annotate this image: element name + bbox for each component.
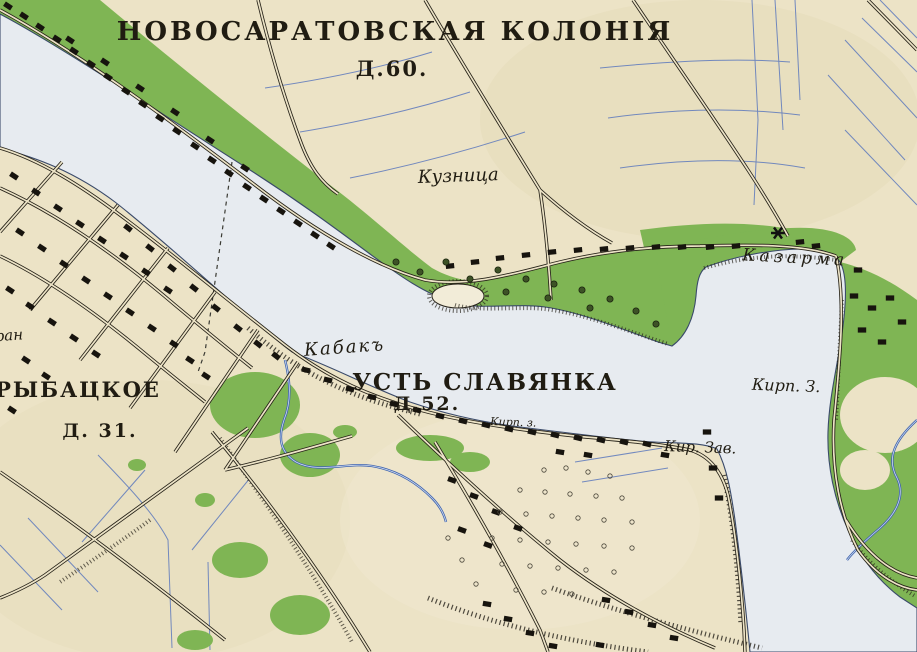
- historical-map: НОВОСАРАТОВСКАЯ КОЛОНІЯ Д.60. Кузница Ка…: [0, 0, 917, 652]
- label-partial-left-edge: аран: [0, 325, 24, 346]
- label-ust-slavyanka: УСТЬ СЛАВЯНКА: [352, 369, 618, 396]
- label-kirp-small: Кирп. з.: [489, 415, 537, 430]
- label-kuznitsa: Кузница: [416, 164, 499, 188]
- label-kir-zav: Кир. Зав.: [663, 437, 737, 458]
- label-d52: Д.52.: [394, 393, 461, 415]
- label-d60: Д.60.: [356, 56, 429, 81]
- label-novosaratovskaya-koloniya: НОВОСАРАТОВСКАЯ КОЛОНІЯ: [117, 17, 674, 47]
- label-kirp-z: Кирп. З.: [751, 375, 821, 396]
- label-rybatskoe: РЫБАЦКОЕ: [0, 377, 161, 402]
- label-d31: Д. 31.: [62, 420, 137, 442]
